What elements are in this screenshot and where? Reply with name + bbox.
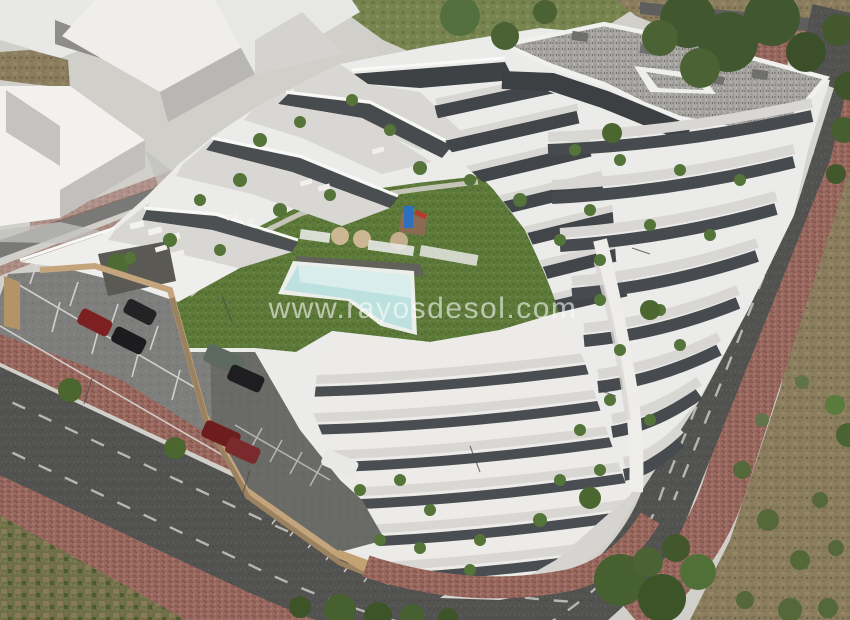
svg-text:www.rayosdesol.com: www.rayosdesol.com <box>268 292 578 325</box>
